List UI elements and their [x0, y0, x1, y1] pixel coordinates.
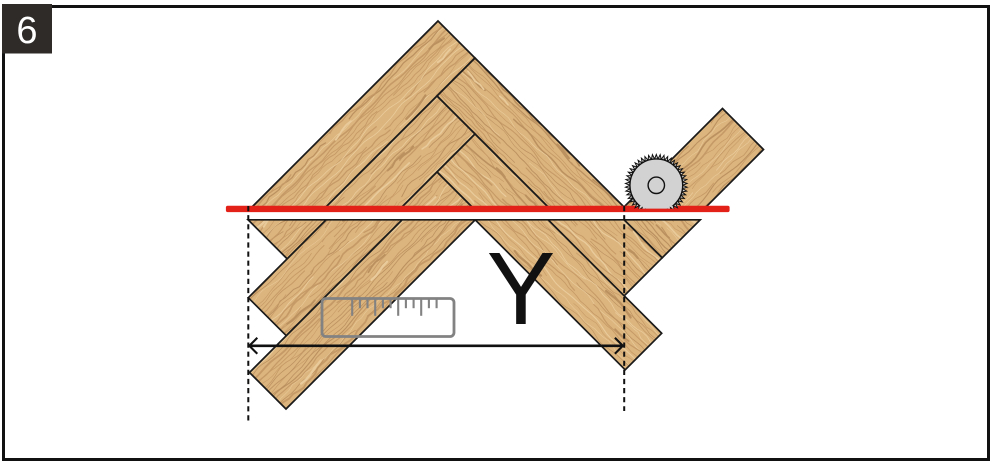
svg-text:Y: Y [487, 231, 556, 346]
svg-text:6: 6 [16, 10, 37, 52]
